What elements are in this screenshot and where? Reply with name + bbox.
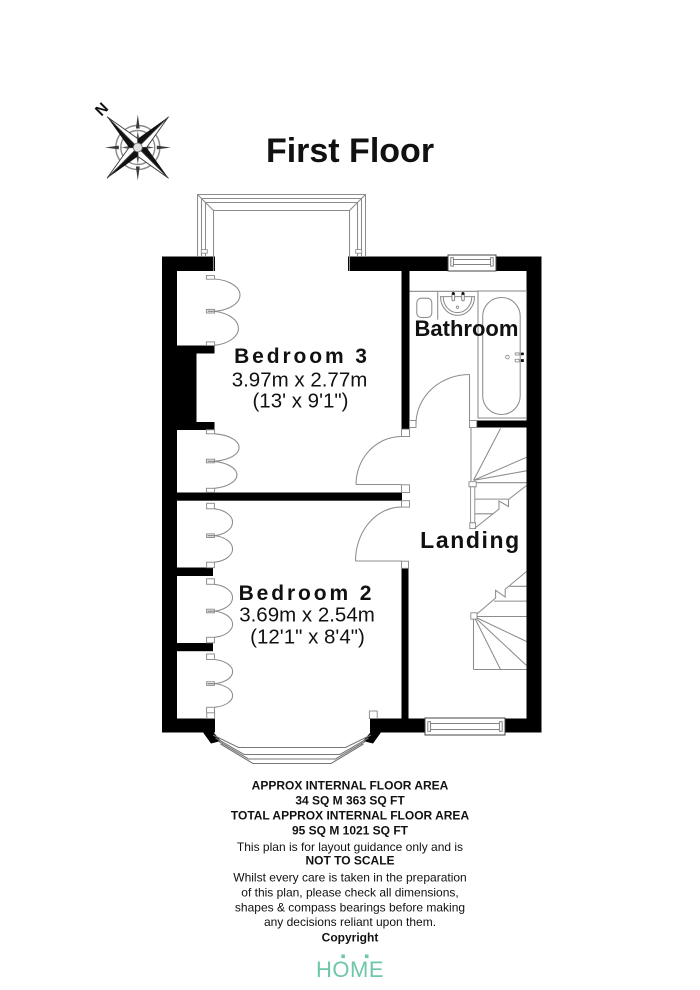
svg-text:3.69m x 2.54m: 3.69m x 2.54m [239, 604, 375, 627]
svg-text:Whilst every care is taken in: Whilst every care is taken in the prepar… [233, 871, 466, 885]
svg-text:Landing: Landing [420, 527, 521, 553]
svg-text:shapes & compass bearings befo: shapes & compass bearings before making [235, 901, 465, 915]
svg-text:any decisions reliant upon the: any decisions reliant upon them. [264, 915, 436, 929]
svg-text:This plan is for layout guidan: This plan is for layout guidance only an… [237, 840, 463, 854]
svg-text:HOME: HOME [316, 957, 384, 982]
svg-text:Bedroom 3: Bedroom 3 [234, 345, 370, 368]
svg-text:3.97m x 2.77m: 3.97m x 2.77m [232, 369, 368, 392]
svg-text:34 SQ M 363 SQ FT: 34 SQ M 363 SQ FT [295, 794, 405, 808]
svg-text:95 SQ M 1021 SQ FT: 95 SQ M 1021 SQ FT [292, 824, 409, 838]
svg-text:of this plan, please check all: of this plan, please check all dimension… [241, 886, 458, 900]
svg-text:(13' x 9'1"): (13' x 9'1") [252, 390, 348, 413]
svg-text:Bathroom: Bathroom [415, 316, 519, 341]
svg-text:APPROX INTERNAL FLOOR AREA: APPROX INTERNAL FLOOR AREA [252, 779, 449, 793]
svg-text:TOTAL APPROX INTERNAL FLOOR AR: TOTAL APPROX INTERNAL FLOOR AREA [231, 809, 470, 823]
svg-text:(12'1" x 8'4"): (12'1" x 8'4") [250, 626, 365, 649]
svg-text:Bedroom 2: Bedroom 2 [239, 582, 375, 605]
svg-text:NOT TO SCALE: NOT TO SCALE [305, 854, 394, 868]
svg-text:Copyright: Copyright [322, 931, 379, 945]
svg-text:First Floor: First Floor [266, 132, 434, 170]
